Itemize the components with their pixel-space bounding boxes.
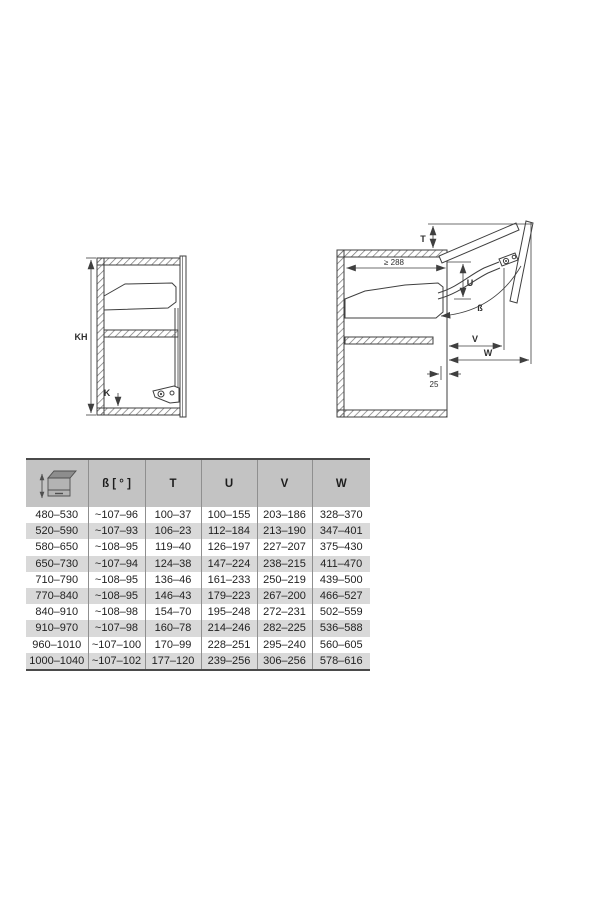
table-cell: ~108–98 — [88, 604, 145, 620]
table-cell: 710–790 — [26, 572, 88, 588]
table-cell: ~107–102 — [88, 653, 145, 670]
u-dimension: U — [447, 262, 473, 299]
table-cell: 466–527 — [312, 588, 370, 604]
table-cell: 213–190 — [257, 523, 312, 539]
table-row: 960–1010 ~107–100 170–99 228–251 295–240… — [26, 637, 370, 653]
table-cell: ~107–98 — [88, 620, 145, 636]
table-cell: ~107–96 — [88, 507, 145, 523]
table-cell: 170–99 — [145, 637, 201, 653]
door-panel-closed — [180, 256, 186, 417]
table-cell: 177–120 — [145, 653, 201, 670]
min-width-label: ≥ 288 — [384, 258, 405, 267]
cabinet-walls — [337, 250, 447, 417]
beta-label: ß — [477, 303, 483, 313]
table-row: 840–910 ~108–98 154–70 195–248 272–231 5… — [26, 604, 370, 620]
k-label: K — [104, 388, 111, 398]
table-cell: 960–1010 — [26, 637, 88, 653]
t-label: T — [420, 234, 426, 244]
open-position-drawing: T ≥ 288 U ß V — [328, 216, 578, 438]
table-cell: 136–46 — [145, 572, 201, 588]
table-cell: 238–215 — [257, 556, 312, 572]
beta-angle: ß — [441, 266, 521, 316]
table-row: 520–590 ~107–93 106–23 112–184 213–190 3… — [26, 523, 370, 539]
table-cell: 112–184 — [201, 523, 257, 539]
table-cell: 411–470 — [312, 556, 370, 572]
column-header-beta: ß [ ° ] — [88, 459, 145, 507]
table-cell: 100–37 — [145, 507, 201, 523]
kh-label: KH — [75, 332, 88, 342]
table-cell: 306–256 — [257, 653, 312, 670]
table-row: 770–840 ~108–95 146–43 179–223 267–200 4… — [26, 588, 370, 604]
table-cell: 282–225 — [257, 620, 312, 636]
table-cell: 520–590 — [26, 523, 88, 539]
table-cell: 272–231 — [257, 604, 312, 620]
table-cell: 126–197 — [201, 539, 257, 555]
table-cell: 536–588 — [312, 620, 370, 636]
cabinet-height-icon — [34, 464, 80, 504]
table-row: 1000–1040 ~107–102 177–120 239–256 306–2… — [26, 653, 370, 670]
table-cell: 119–40 — [145, 539, 201, 555]
table-row: 710–790 ~108–95 136–46 161–233 250–219 4… — [26, 572, 370, 588]
table-cell: 328–370 — [312, 507, 370, 523]
table-cell: 250–219 — [257, 572, 312, 588]
table-cell: ~108–95 — [88, 588, 145, 604]
table-cell: 106–23 — [145, 523, 201, 539]
dimension-table: ß [ ° ] T U V W 480–530 ~107–96 100–37 1… — [26, 458, 370, 671]
table-cell: 770–840 — [26, 588, 88, 604]
closed-position-drawing: KH K — [73, 244, 205, 424]
table-cell: 267–200 — [257, 588, 312, 604]
table-cell: ~108–95 — [88, 572, 145, 588]
table-cell: ~107–94 — [88, 556, 145, 572]
column-header-v: V — [257, 459, 312, 507]
table-cell: 227–207 — [257, 539, 312, 555]
column-header-w: W — [312, 459, 370, 507]
kh-dimension: KH — [75, 258, 97, 415]
inset-dimension: 25 — [427, 366, 461, 389]
table-cell: 214–246 — [201, 620, 257, 636]
table-row: 480–530 ~107–96 100–37 100–155 203–186 3… — [26, 507, 370, 523]
open-position-svg: T ≥ 288 U ß V — [328, 216, 578, 438]
table-cell: 239–256 — [201, 653, 257, 670]
table-cell: 295–240 — [257, 637, 312, 653]
inset-label: 25 — [430, 380, 439, 389]
table-cell: 146–43 — [145, 588, 201, 604]
table-cell: 560–605 — [312, 637, 370, 653]
table-row: 910–970 ~107–98 160–78 214–246 282–225 5… — [26, 620, 370, 636]
table-cell: 100–155 — [201, 507, 257, 523]
table-header-icon-cell — [26, 459, 88, 507]
k-dimension: K — [104, 388, 118, 406]
table-cell: 347–401 — [312, 523, 370, 539]
table-cell: ~107–93 — [88, 523, 145, 539]
table-cell: 375–430 — [312, 539, 370, 555]
table-cell: 195–248 — [201, 604, 257, 620]
table-cell: 650–730 — [26, 556, 88, 572]
column-header-t: T — [145, 459, 201, 507]
lift-mechanism — [345, 283, 443, 318]
u-label: U — [467, 278, 474, 288]
dimension-table-wrap: ß [ ° ] T U V W 480–530 ~107–96 100–37 1… — [26, 458, 370, 671]
table-cell: 1000–1040 — [26, 653, 88, 670]
shelf — [104, 330, 178, 337]
table-cell: 161–233 — [201, 572, 257, 588]
arm-fitting — [499, 253, 518, 266]
table-cell: ~107–100 — [88, 637, 145, 653]
table-cell: 154–70 — [145, 604, 201, 620]
table-cell: 203–186 — [257, 507, 312, 523]
table-row: 580–650 ~108–95 119–40 126–197 227–207 3… — [26, 539, 370, 555]
v-label: V — [472, 334, 478, 344]
page: KH K — [0, 0, 600, 900]
table-cell: 147–224 — [201, 556, 257, 572]
table-cell: 228–251 — [201, 637, 257, 653]
table-row: 650–730 ~107–94 124–38 147–224 238–215 4… — [26, 556, 370, 572]
table-cell: 840–910 — [26, 604, 88, 620]
table-cell: 124–38 — [145, 556, 201, 572]
table-cell: 580–650 — [26, 539, 88, 555]
table-cell: 502–559 — [312, 604, 370, 620]
table-header-row: ß [ ° ] T U V W — [26, 459, 370, 507]
column-header-u: U — [201, 459, 257, 507]
table-cell: 480–530 — [26, 507, 88, 523]
table-cell: 439–500 — [312, 572, 370, 588]
table-cell: 910–970 — [26, 620, 88, 636]
table-cell: ~108–95 — [88, 539, 145, 555]
door-fitting — [153, 386, 179, 403]
closed-position-svg: KH K — [73, 244, 205, 424]
table-cell: 578–616 — [312, 653, 370, 670]
w-label: W — [484, 348, 493, 358]
table-cell: 160–78 — [145, 620, 201, 636]
min-width-dimension: ≥ 288 — [347, 258, 446, 268]
table-cell: 179–223 — [201, 588, 257, 604]
shelf — [345, 337, 433, 344]
